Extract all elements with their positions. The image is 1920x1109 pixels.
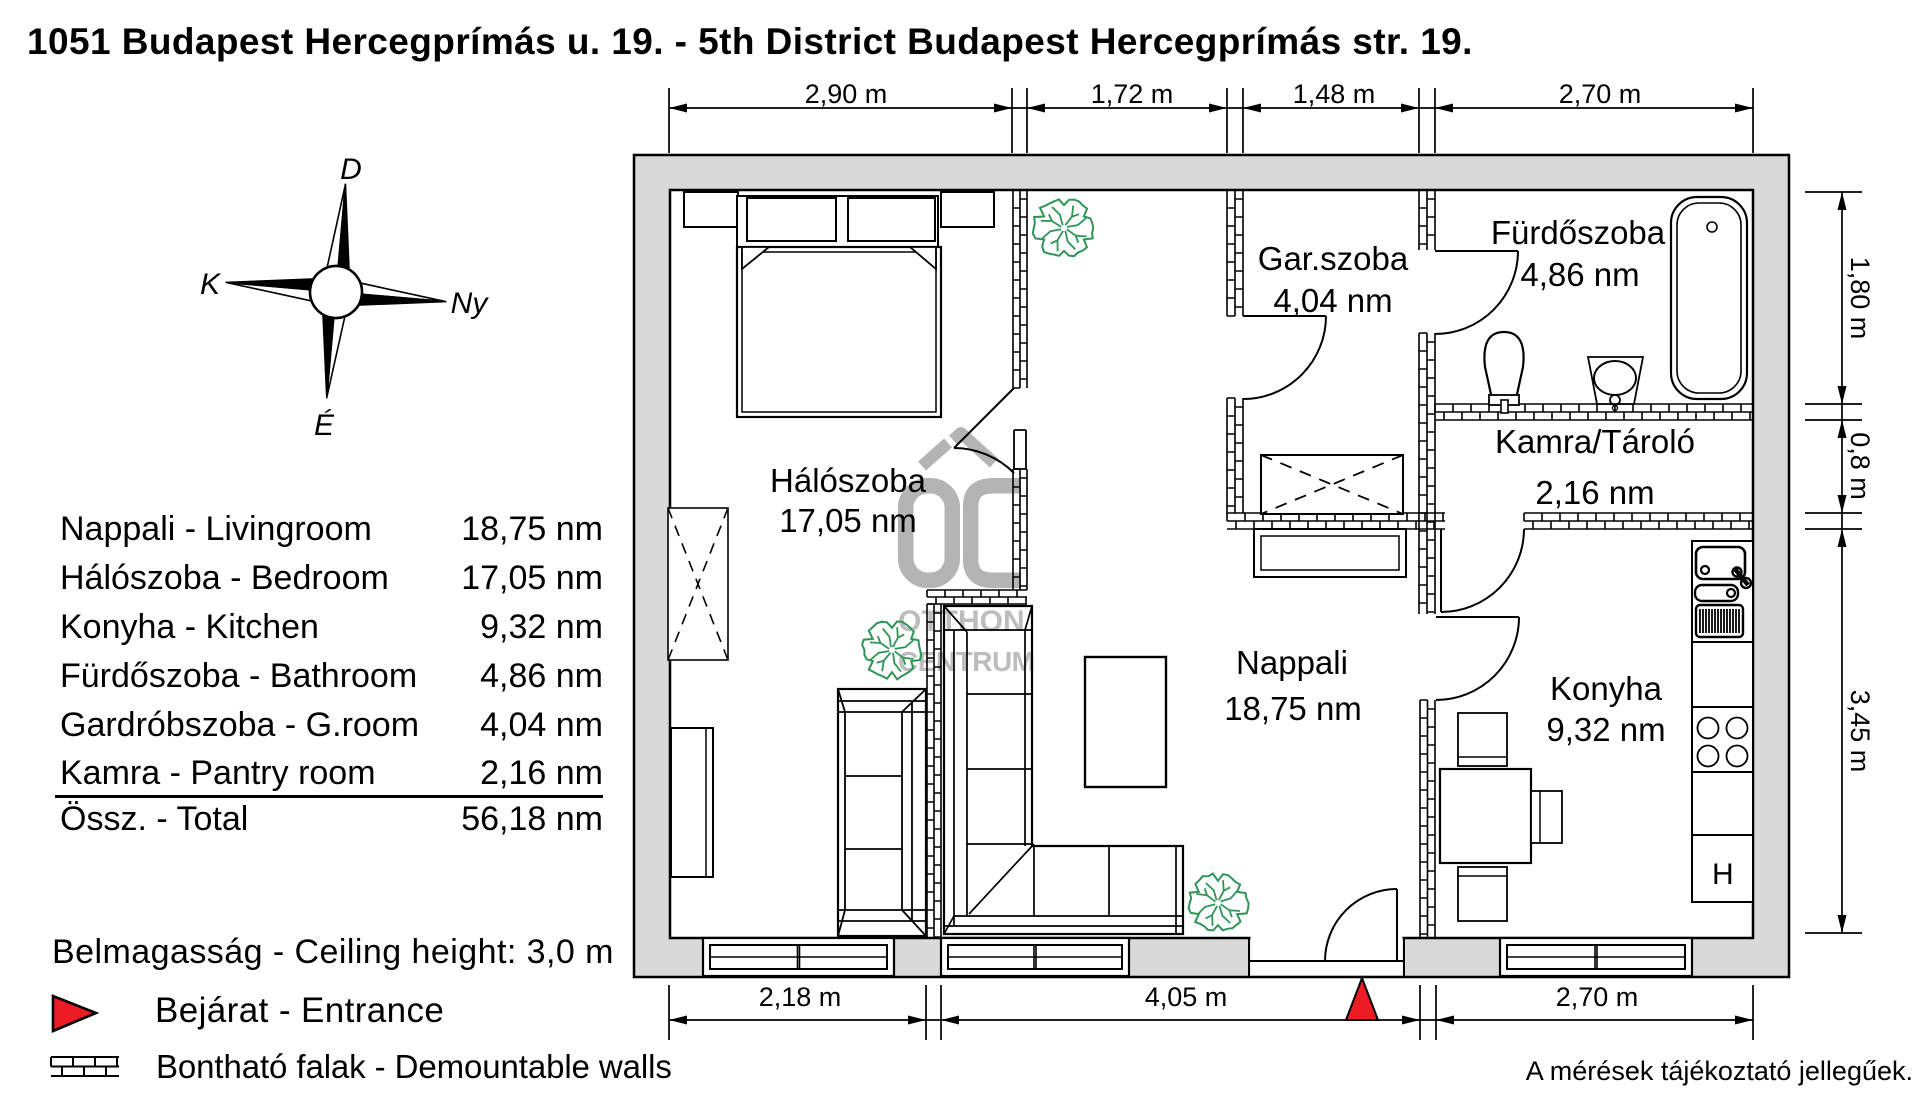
svg-text:1,80 m: 1,80 m: [1845, 257, 1875, 340]
svg-text:Nappali: Nappali: [1236, 644, 1348, 681]
svg-text:Hálószoba - Bedroom: Hálószoba - Bedroom: [60, 559, 389, 597]
svg-text:17,05 nm: 17,05 nm: [779, 502, 917, 539]
svg-text:2,16 nm: 2,16 nm: [480, 754, 603, 792]
svg-text:2,70 m: 2,70 m: [1556, 982, 1639, 1012]
svg-text:2,70 m: 2,70 m: [1559, 79, 1642, 109]
svg-text:17,05 nm: 17,05 nm: [461, 559, 603, 597]
svg-text:18,75 nm: 18,75 nm: [461, 510, 603, 548]
svg-text:Kamra - Pantry room: Kamra - Pantry room: [60, 754, 376, 792]
svg-text:OTTHON: OTTHON: [898, 605, 1025, 638]
svg-text:9,32 nm: 9,32 nm: [480, 608, 603, 646]
svg-text:4,86 nm: 4,86 nm: [480, 657, 603, 695]
svg-text:3,45 m: 3,45 m: [1845, 690, 1875, 773]
svg-text:1,48 m: 1,48 m: [1293, 79, 1376, 109]
svg-text:Kamra/Tároló: Kamra/Tároló: [1495, 423, 1695, 460]
svg-text:Konyha: Konyha: [1550, 670, 1663, 707]
svg-text:Bontható falak - Demountable w: Bontható falak - Demountable walls: [156, 1048, 672, 1085]
svg-text:4,04 nm: 4,04 nm: [480, 706, 603, 744]
svg-text:Belmagasság - Ceiling height:: Belmagasság - Ceiling height: 3,0 m: [52, 933, 614, 971]
svg-text:É: É: [314, 409, 335, 442]
svg-text:Nappali - Livingroom: Nappali - Livingroom: [60, 510, 372, 548]
svg-text:0,8 m: 0,8 m: [1845, 432, 1875, 500]
svg-text:4,86 nm: 4,86 nm: [1520, 256, 1639, 293]
svg-text:H: H: [1712, 858, 1734, 891]
svg-text:1051 Budapest Hercegprímás u.: 1051 Budapest Hercegprímás u. 19. - 5th …: [27, 21, 1473, 62]
svg-text:1,72 m: 1,72 m: [1091, 79, 1174, 109]
svg-text:K: K: [200, 268, 222, 301]
svg-text:4,04 nm: 4,04 nm: [1273, 282, 1392, 319]
svg-text:Gar.szoba: Gar.szoba: [1258, 240, 1409, 277]
svg-text:D: D: [340, 153, 362, 186]
svg-text:56,18 nm: 56,18 nm: [461, 800, 603, 838]
svg-text:Bejárat - Entrance: Bejárat - Entrance: [155, 991, 444, 1030]
svg-text:18,75 nm: 18,75 nm: [1224, 690, 1362, 727]
svg-text:2,16 nm: 2,16 nm: [1535, 474, 1654, 511]
svg-text:Össz. - Total: Össz. - Total: [60, 800, 248, 838]
svg-text:2,90 m: 2,90 m: [805, 79, 888, 109]
svg-text:Ny: Ny: [451, 287, 490, 320]
svg-text:Fürdőszoba - Bathroom: Fürdőszoba - Bathroom: [60, 657, 417, 695]
svg-text:Fürdőszoba: Fürdőszoba: [1491, 214, 1666, 251]
svg-text:A mérések tájékoztató jellegűe: A mérések tájékoztató jellegűek.: [1526, 1056, 1913, 1086]
svg-text:4,05 m: 4,05 m: [1145, 982, 1228, 1012]
svg-text:9,32 nm: 9,32 nm: [1546, 711, 1665, 748]
svg-text:2,18 m: 2,18 m: [759, 982, 842, 1012]
svg-text:Hálószoba: Hálószoba: [770, 462, 927, 499]
svg-text:Gardróbszoba - G.room: Gardróbszoba - G.room: [60, 706, 419, 744]
svg-text:Konyha - Kitchen: Konyha - Kitchen: [60, 608, 319, 646]
